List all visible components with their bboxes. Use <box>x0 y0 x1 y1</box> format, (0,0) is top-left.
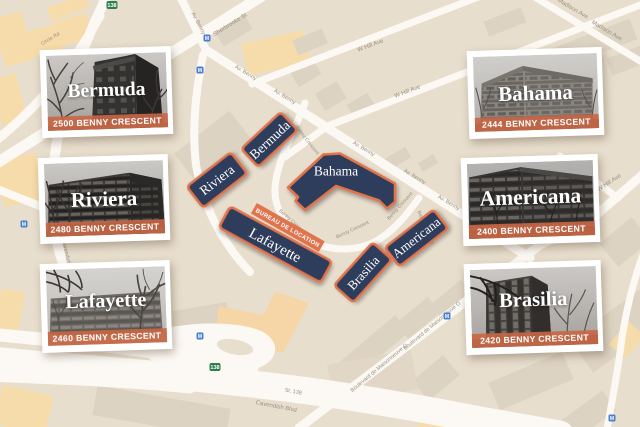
svg-text:M: M <box>198 334 202 340</box>
svg-text:M: M <box>205 36 209 42</box>
svg-text:138: 138 <box>107 3 116 9</box>
svg-text:M: M <box>610 416 614 422</box>
svg-text:M: M <box>22 222 26 228</box>
svg-text:M: M <box>198 68 202 74</box>
svg-text:Bahama: Bahama <box>314 164 358 179</box>
svg-text:M: M <box>445 314 449 320</box>
svg-text:138: 138 <box>210 365 219 371</box>
